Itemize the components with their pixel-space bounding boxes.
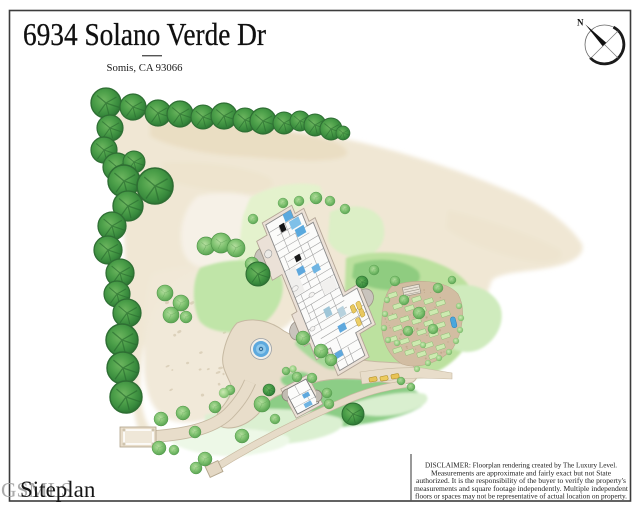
svg-text:N: N [577,18,584,28]
svg-text:6934 Solano Verde Dr: 6934 Solano Verde Dr [23,17,266,52]
svg-text:Somis, CA 93066: Somis, CA 93066 [107,62,183,74]
svg-text:floors or spaces may not be re: floors or spaces may not be representati… [415,492,627,501]
svg-text:Siteplan: Siteplan [20,477,96,502]
